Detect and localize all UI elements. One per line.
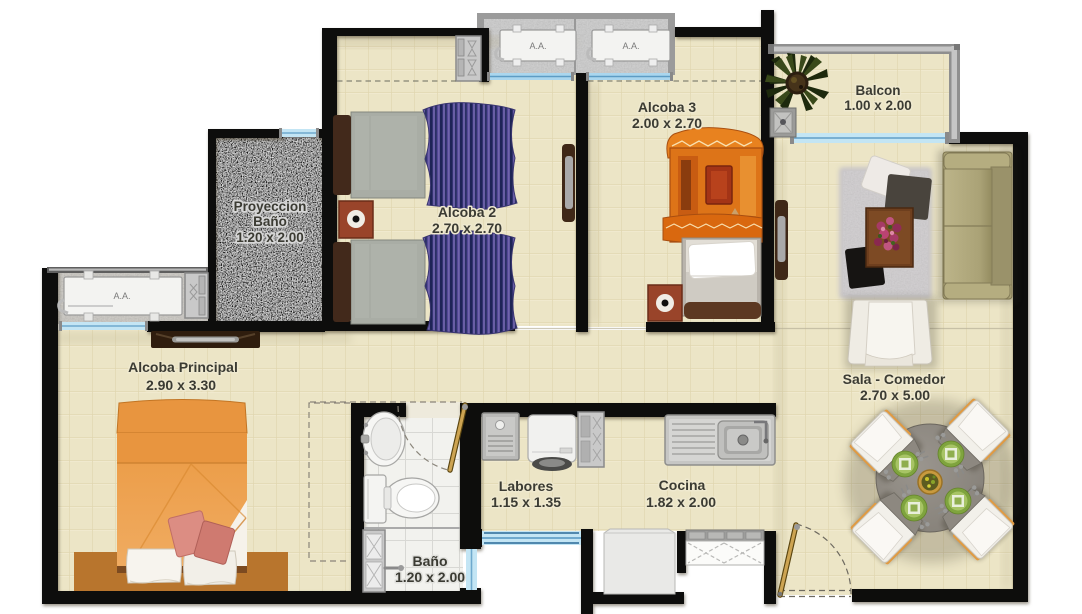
svg-text:Labores: Labores [499, 478, 554, 494]
svg-text:1.20 x 2.00: 1.20 x 2.00 [236, 230, 304, 245]
svg-text:2.00 x 2.70: 2.00 x 2.70 [632, 115, 702, 131]
svg-text:2.90 x 3.30: 2.90 x 3.30 [146, 377, 216, 393]
svg-text:1.82 x 2.00: 1.82 x 2.00 [646, 494, 716, 510]
svg-text:Sala - Comedor: Sala - Comedor [843, 371, 946, 387]
svg-text:Balcon: Balcon [855, 83, 900, 98]
svg-text:A.A.: A.A. [622, 41, 639, 51]
svg-text:A.A.: A.A. [529, 41, 546, 51]
svg-text:Proyeccion: Proyeccion [234, 199, 307, 214]
svg-text:Alcoba 3: Alcoba 3 [638, 99, 697, 115]
svg-text:Cocina: Cocina [659, 477, 706, 493]
svg-text:Alcoba 2: Alcoba 2 [438, 204, 497, 220]
svg-text:2.70 x 5.00: 2.70 x 5.00 [860, 387, 930, 403]
svg-text:Baño: Baño [253, 214, 287, 229]
svg-text:Baño: Baño [413, 553, 448, 569]
svg-text:1.00 x 2.00: 1.00 x 2.00 [844, 98, 912, 113]
svg-text:1.15 x 1.35: 1.15 x 1.35 [491, 494, 561, 510]
svg-text:A.A.: A.A. [113, 291, 130, 301]
svg-text:2.70 x 2.70: 2.70 x 2.70 [432, 220, 502, 236]
svg-text:1.20 x 2.00: 1.20 x 2.00 [395, 569, 465, 585]
svg-text:Alcoba Principal: Alcoba Principal [128, 359, 238, 375]
